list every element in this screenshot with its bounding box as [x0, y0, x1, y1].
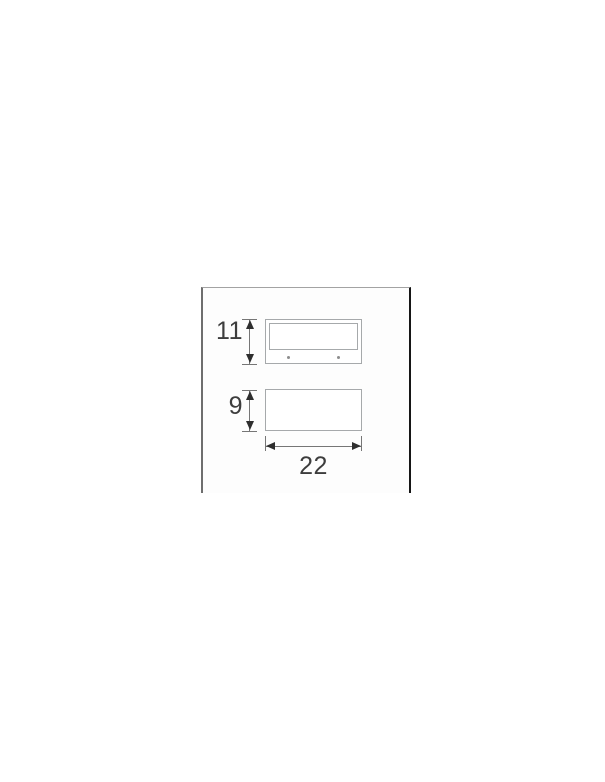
- arrow-up-icon: [246, 320, 254, 329]
- dimension-drawing-panel: 11 9 22: [201, 287, 411, 493]
- screw-dot-right: [337, 356, 340, 359]
- screenshot-canvas: 11 9 22: [0, 0, 605, 782]
- width-label: 22: [265, 454, 362, 479]
- front-height-label: 11: [213, 319, 243, 344]
- side-view-rect: [265, 389, 362, 431]
- arrow-up-icon: [246, 391, 254, 400]
- front-height-tick-bottom: [242, 364, 257, 365]
- side-height-tick-bottom: [242, 431, 257, 432]
- arrow-down-icon: [246, 354, 254, 363]
- width-dimension-line: [265, 446, 362, 447]
- width-tick-right: [361, 436, 362, 451]
- front-view-lens-rect: [269, 323, 358, 350]
- screw-dot-left: [287, 356, 290, 359]
- arrow-right-icon: [352, 442, 361, 450]
- arrow-down-icon: [246, 421, 254, 430]
- side-height-label: 9: [213, 394, 243, 419]
- arrow-left-icon: [266, 442, 275, 450]
